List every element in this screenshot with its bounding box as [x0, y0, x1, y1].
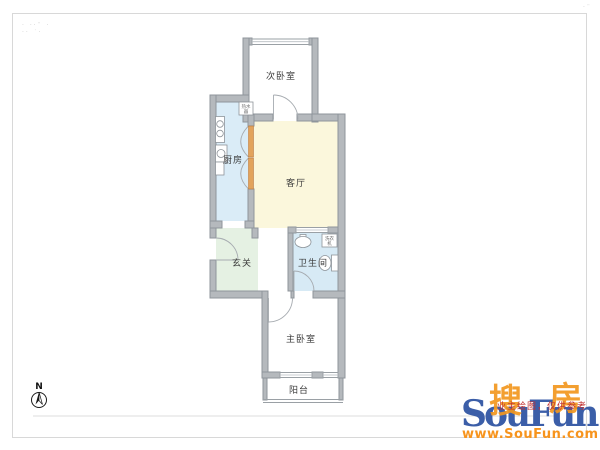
svg-text:机: 机	[327, 240, 332, 247]
wall	[312, 38, 318, 122]
wall	[263, 378, 267, 400]
water-heater-box: 热水 器	[239, 102, 253, 115]
window-bathroom	[296, 228, 328, 233]
window-master-bedroom-left	[280, 373, 312, 378]
room-label-balcony: 阳台	[289, 384, 309, 396]
folding-door-leaf	[249, 126, 254, 157]
logo-url: www.SouFun.com	[462, 427, 599, 442]
wall	[210, 228, 216, 238]
north-label: N	[35, 382, 43, 392]
wall	[288, 233, 293, 291]
stove-icon	[216, 117, 225, 143]
wall	[312, 372, 323, 378]
logo-cn-fang: 房	[549, 372, 582, 420]
balcony-rail	[263, 400, 343, 403]
wall	[339, 378, 343, 400]
wall	[291, 291, 294, 298]
wall	[262, 372, 280, 378]
svg-text:洗衣: 洗衣	[325, 235, 334, 242]
room-label-bathroom: 卫生间	[298, 257, 328, 269]
folding-door-leaf	[249, 158, 254, 189]
wall	[248, 114, 254, 126]
wall	[288, 227, 296, 233]
compass-icon: N	[32, 382, 47, 408]
wall	[210, 260, 216, 292]
room-label-master-bedroom: 主卧室	[286, 333, 316, 345]
room-label-living-room: 客厅	[286, 177, 306, 189]
floorplan-image: · ··¨ · ·· ˙· ·¨	[0, 0, 600, 450]
wall	[328, 227, 338, 233]
svg-text:器: 器	[244, 109, 249, 115]
wall	[210, 221, 222, 228]
window-master-bedroom-right	[323, 373, 338, 378]
wall	[262, 291, 268, 378]
wall	[252, 228, 258, 238]
wall	[297, 114, 312, 121]
wall	[210, 291, 268, 298]
window-secondary-bedroom	[252, 39, 309, 45]
wall	[313, 291, 345, 298]
wall	[248, 189, 254, 221]
room-fill-living-room	[254, 121, 338, 228]
svg-text:热水: 热水	[242, 103, 251, 110]
room-label-secondary-bedroom: 次卧室	[266, 70, 296, 82]
wall	[338, 114, 345, 378]
room-label-foyer: 玄关	[232, 257, 252, 269]
logo-cn-sou: 搜	[489, 374, 522, 422]
washer-box: 洗衣 机	[322, 234, 337, 247]
wall	[245, 221, 254, 228]
logo-disclaimer: 业主绘图，仅供参考	[497, 399, 587, 412]
room-label-kitchen: 厨房	[223, 154, 243, 166]
